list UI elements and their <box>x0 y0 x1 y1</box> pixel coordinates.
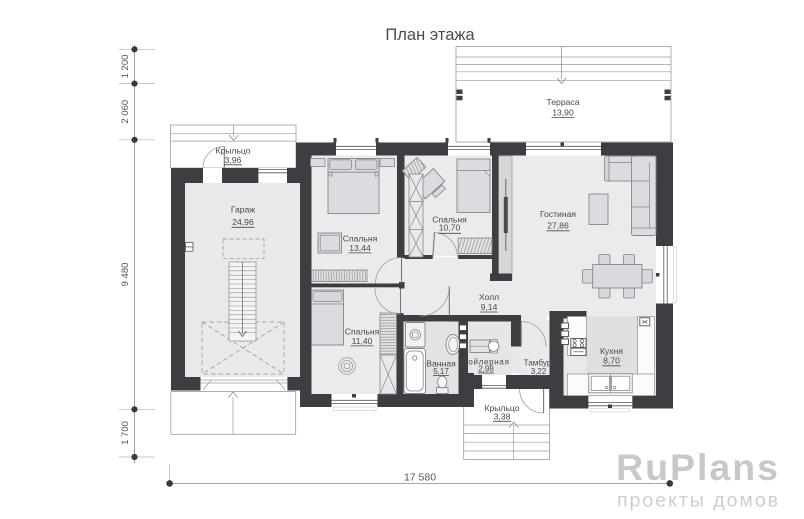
svg-text:2,98: 2,98 <box>478 364 494 373</box>
svg-text:17 580: 17 580 <box>404 472 436 484</box>
svg-text:проекты домов: проекты домов <box>617 490 780 512</box>
svg-text:9,14: 9,14 <box>481 302 498 312</box>
svg-text:8,70: 8,70 <box>603 356 620 366</box>
svg-text:13,44: 13,44 <box>349 243 371 253</box>
svg-text:27,86: 27,86 <box>547 221 569 231</box>
svg-text:3,38: 3,38 <box>494 411 511 421</box>
svg-text:11,40: 11,40 <box>352 336 373 346</box>
svg-text:Спальня: Спальня <box>345 326 380 336</box>
svg-text:1 200: 1 200 <box>120 55 131 79</box>
svg-text:10,70: 10,70 <box>439 223 461 233</box>
svg-text:RuPlans: RuPlans <box>616 446 780 488</box>
svg-text:5,17: 5,17 <box>433 367 449 376</box>
svg-text:Терраса: Терраса <box>547 97 580 107</box>
svg-text:Гостиная: Гостиная <box>540 209 576 219</box>
svg-text:Спальня: Спальня <box>343 233 378 243</box>
svg-text:3,22: 3,22 <box>531 367 547 376</box>
svg-text:1 700: 1 700 <box>120 421 131 445</box>
svg-text:Гараж: Гараж <box>231 205 256 215</box>
svg-text:Холл: Холл <box>479 292 499 302</box>
svg-text:Кухня: Кухня <box>600 346 623 356</box>
svg-text:План этажа: План этажа <box>385 26 475 44</box>
svg-text:13,90: 13,90 <box>552 107 574 117</box>
svg-text:24,96: 24,96 <box>232 217 254 227</box>
svg-text:2 060: 2 060 <box>120 100 131 124</box>
svg-text:9 480: 9 480 <box>120 263 131 287</box>
svg-text:3,96: 3,96 <box>225 155 242 165</box>
